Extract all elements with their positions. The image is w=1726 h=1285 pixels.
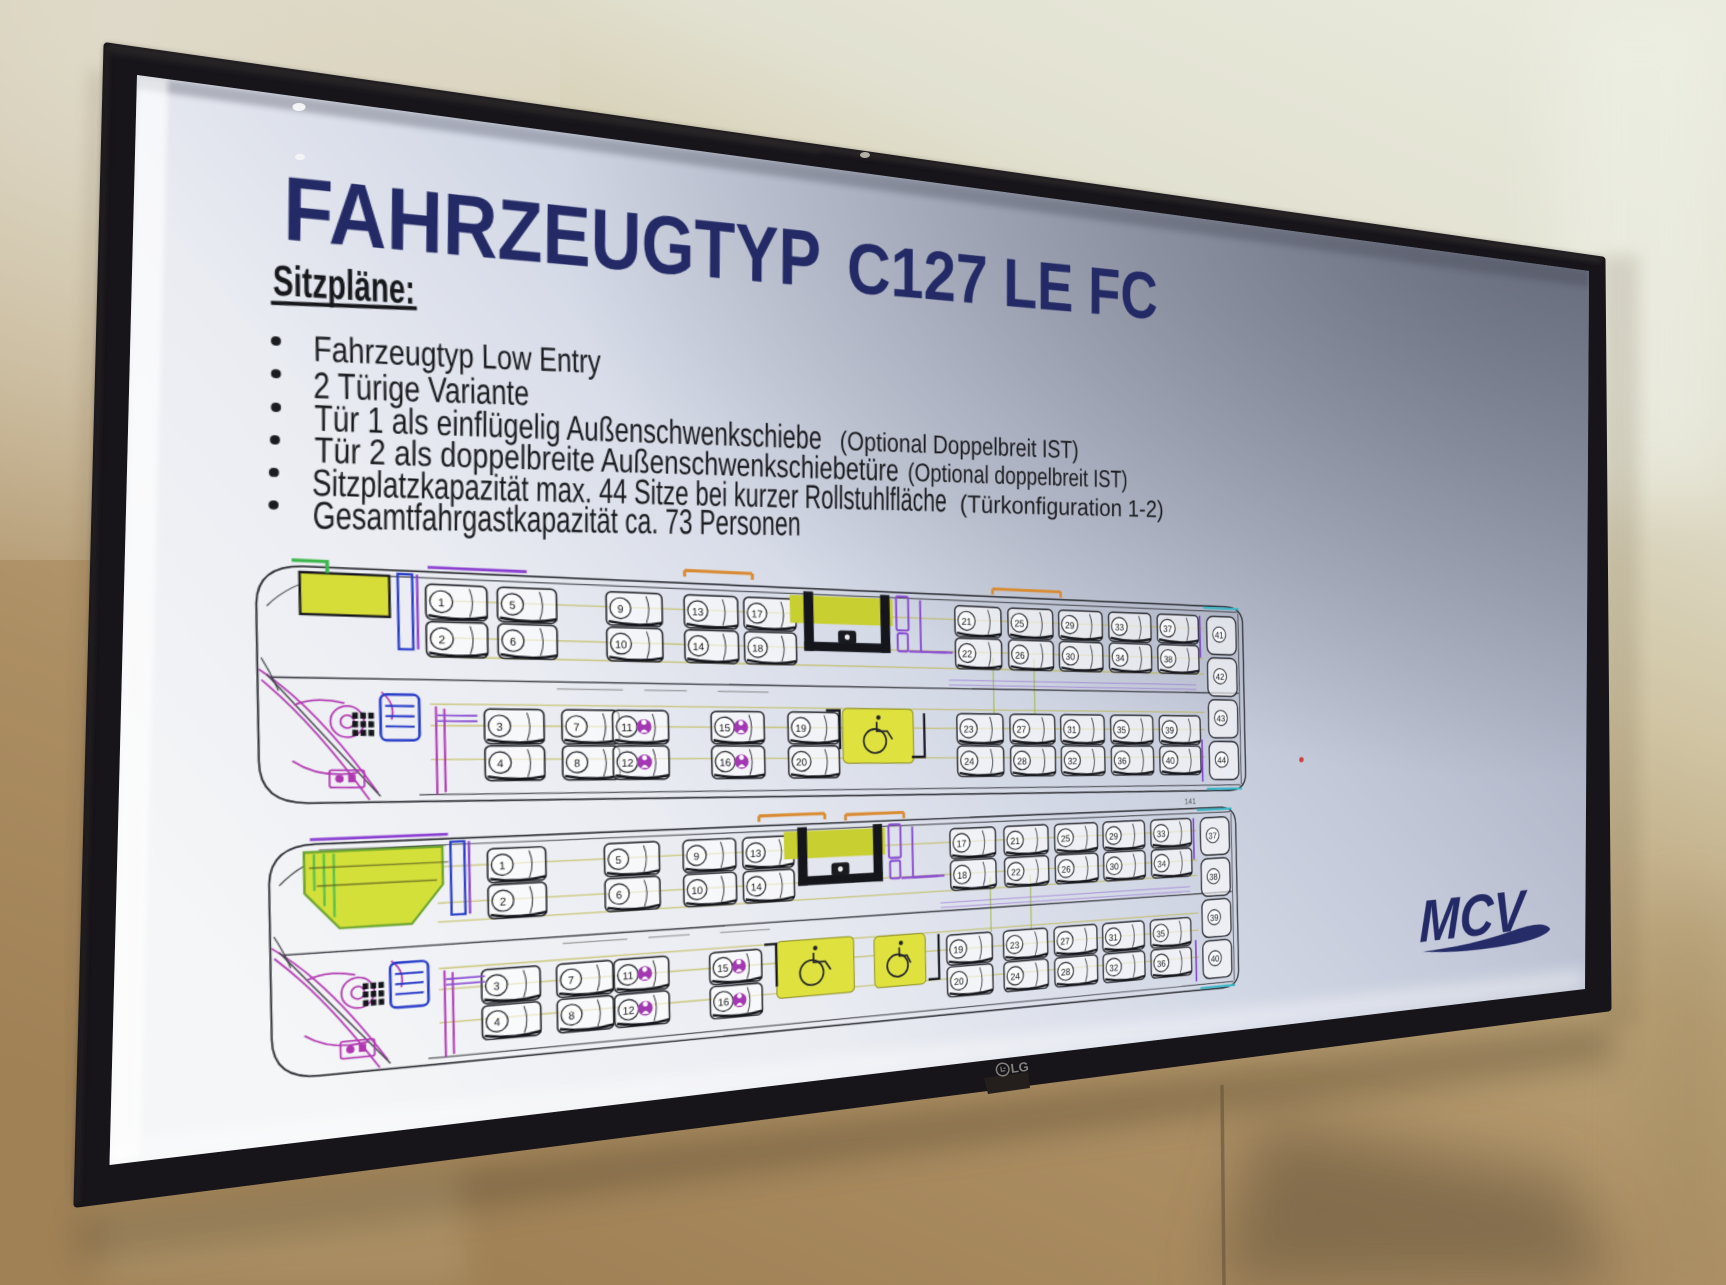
svg-text:11: 11 [622,969,633,982]
svg-text:34: 34 [1157,858,1166,869]
svg-text:17: 17 [751,608,762,620]
svg-text:7: 7 [568,974,574,987]
svg-text:27: 27 [1016,724,1026,735]
svg-text:18: 18 [752,642,763,654]
svg-text:36: 36 [1117,756,1126,767]
svg-text:13: 13 [750,847,761,859]
svg-text:8: 8 [568,1009,574,1022]
svg-text:22: 22 [962,648,972,659]
svg-text:34: 34 [1115,653,1124,664]
svg-text:9: 9 [617,603,623,615]
svg-text:33: 33 [1157,828,1166,839]
svg-text:30: 30 [1066,651,1076,662]
svg-text:21: 21 [1010,835,1020,846]
svg-text:35: 35 [1117,725,1126,736]
svg-text:18: 18 [957,869,967,881]
svg-text:23: 23 [1010,939,1020,951]
svg-text:37: 37 [1208,830,1217,841]
svg-text:26: 26 [1061,864,1070,875]
svg-text:29: 29 [1065,620,1075,631]
svg-text:C127 LE FC: C127 LE FC [847,227,1158,333]
svg-text:29: 29 [1109,831,1118,842]
svg-text:17: 17 [957,838,967,850]
svg-text:(Türkonfiguration 1-2): (Türkonfiguration 1-2) [960,490,1164,523]
svg-text:41: 41 [1215,630,1224,641]
svg-text:4: 4 [497,757,504,770]
svg-text:5: 5 [615,854,621,867]
svg-text:27: 27 [1060,935,1069,947]
svg-text:19: 19 [953,944,963,956]
svg-text:24: 24 [964,756,974,767]
svg-text:8: 8 [574,757,580,769]
svg-text:24: 24 [1010,971,1020,983]
svg-text:42: 42 [1216,672,1225,682]
svg-text:1: 1 [499,859,505,872]
svg-text:7: 7 [573,721,579,733]
svg-text:4: 4 [494,1015,501,1028]
svg-text:11: 11 [621,721,632,733]
svg-text:16: 16 [718,996,729,1009]
svg-text:16: 16 [719,757,731,769]
svg-text:141: 141 [1184,797,1196,806]
svg-text:19: 19 [795,722,806,734]
svg-text:31: 31 [1067,724,1077,735]
svg-text:28: 28 [1061,966,1070,978]
svg-text:31: 31 [1109,932,1118,943]
svg-text:13: 13 [692,606,704,618]
svg-text:6: 6 [510,635,517,648]
svg-text:25: 25 [1014,618,1024,629]
svg-text:23: 23 [964,724,974,735]
svg-text:3: 3 [493,979,500,992]
svg-text:38: 38 [1164,654,1173,665]
svg-text:20: 20 [954,975,964,987]
svg-text:9: 9 [694,850,700,862]
svg-text:21: 21 [961,616,971,627]
svg-text:32: 32 [1109,962,1118,973]
svg-text:10: 10 [691,884,703,897]
svg-text:6: 6 [616,889,622,902]
svg-text:35: 35 [1156,928,1165,939]
svg-text:10: 10 [615,638,627,651]
svg-text:30: 30 [1110,861,1119,872]
svg-text:33: 33 [1115,622,1124,633]
svg-text:32: 32 [1068,756,1078,767]
svg-text:14: 14 [751,881,762,893]
svg-text:36: 36 [1157,958,1166,969]
svg-text:37: 37 [1163,624,1172,635]
svg-text:12: 12 [623,1004,635,1017]
svg-text:40: 40 [1211,953,1220,964]
svg-text:44: 44 [1217,755,1226,765]
svg-text:1: 1 [438,596,445,609]
svg-text:20: 20 [796,756,807,768]
svg-text:14: 14 [693,641,705,653]
svg-text:5: 5 [509,599,516,612]
svg-text:2: 2 [439,633,446,646]
svg-text:15: 15 [717,962,728,975]
svg-text:3: 3 [496,720,503,733]
svg-text:39: 39 [1210,912,1219,923]
svg-text:25: 25 [1061,833,1070,844]
svg-text:12: 12 [621,757,633,769]
svg-text:2: 2 [500,895,506,908]
svg-text:38: 38 [1209,871,1218,882]
svg-text:28: 28 [1017,756,1027,767]
svg-text:43: 43 [1217,713,1226,723]
svg-text:22: 22 [1011,866,1021,877]
svg-text:39: 39 [1165,725,1174,735]
svg-text:40: 40 [1166,755,1175,765]
svg-text:LG: LG [1010,1059,1030,1076]
svg-text:26: 26 [1015,650,1025,661]
svg-text:15: 15 [719,722,731,734]
